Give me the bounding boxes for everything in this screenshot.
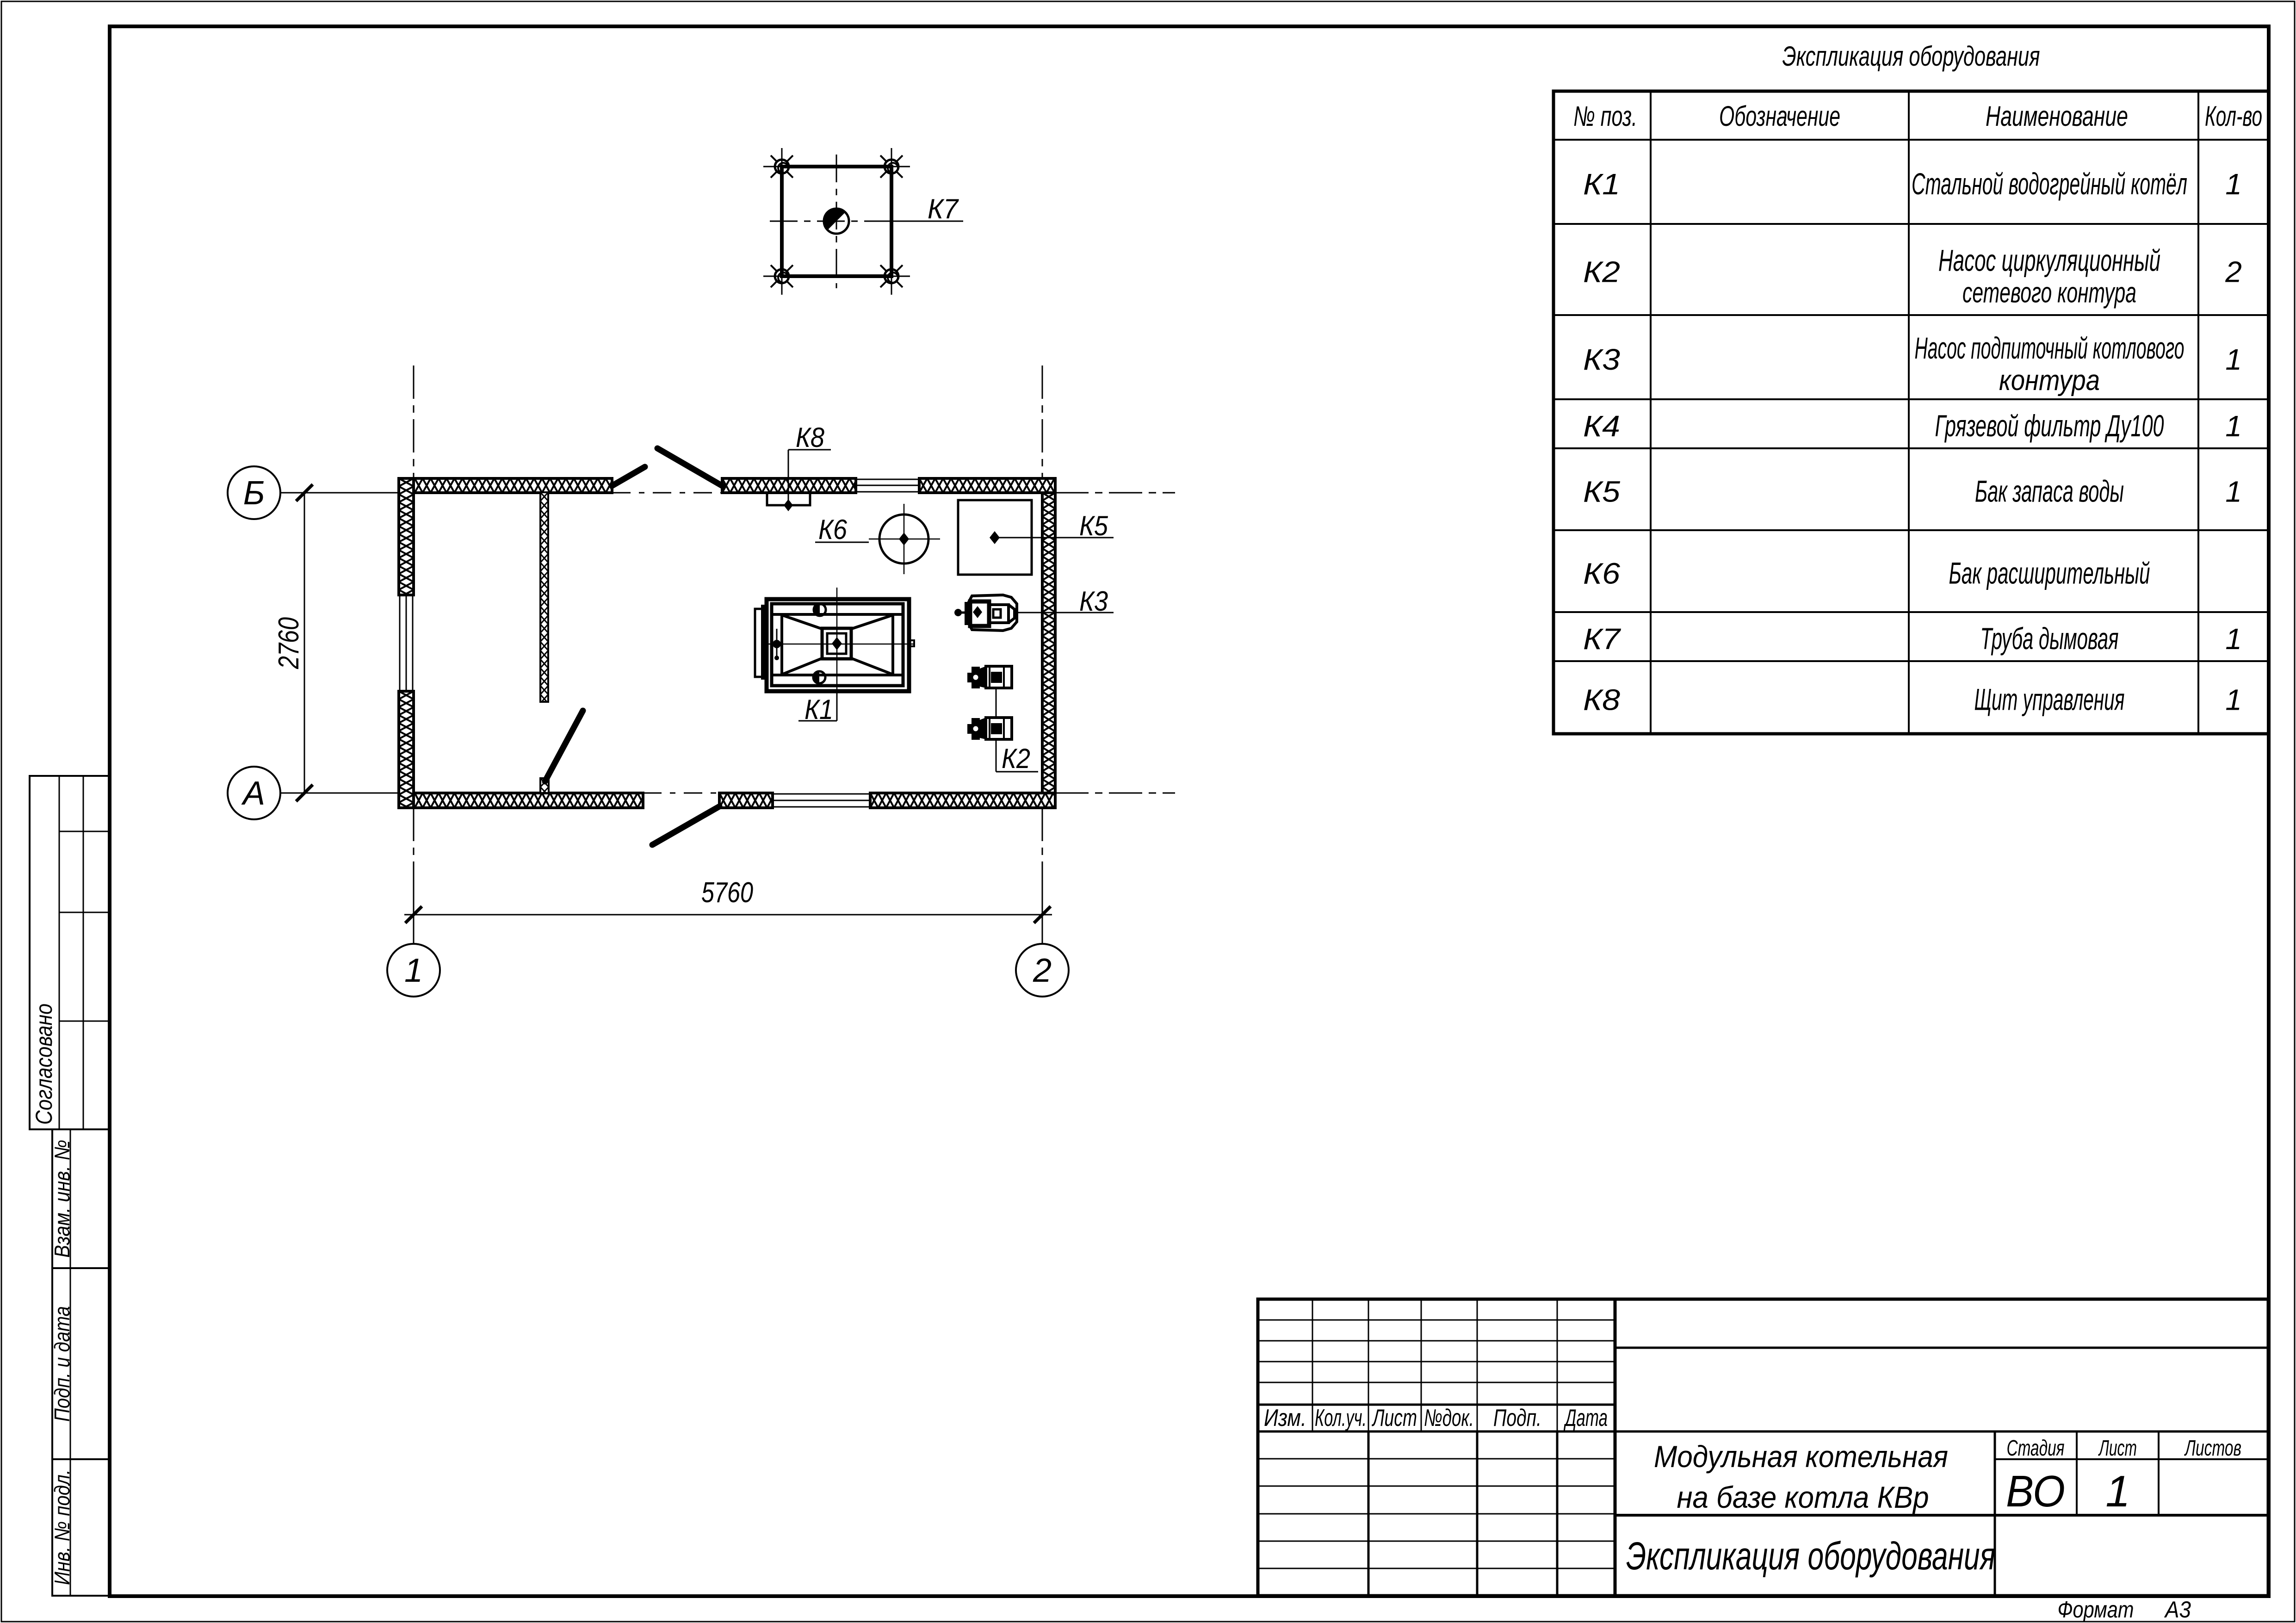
svg-text:Экспликация оборудования: Экспликация оборудования (1782, 41, 2040, 72)
svg-text:К2: К2 (1002, 743, 1030, 774)
svg-text:Насос подпиточный котлового: Насос подпиточный котлового (1915, 331, 2185, 365)
svg-text:Листов: Листов (2184, 1436, 2241, 1461)
svg-text:Модульная котельная: Модульная котельная (1654, 1439, 1948, 1474)
svg-text:К3: К3 (1079, 586, 1108, 617)
svg-text:№док.: №док. (1424, 1405, 1474, 1431)
svg-text:Стадия: Стадия (2007, 1436, 2065, 1461)
svg-text:Лист: Лист (2098, 1436, 2137, 1461)
svg-text:К8: К8 (1583, 683, 1620, 717)
svg-text:контура: контура (1999, 365, 2100, 396)
svg-text:Кол.уч.: Кол.уч. (1315, 1405, 1367, 1431)
svg-text:К6: К6 (1583, 557, 1620, 590)
svg-text:1: 1 (2225, 343, 2242, 376)
svg-text:ВО: ВО (2006, 1467, 2065, 1516)
svg-text:К1: К1 (1583, 167, 1620, 201)
svg-text:А: А (241, 775, 265, 812)
svg-text:сетевого контура: сетевого контура (1962, 277, 2136, 309)
svg-text:1: 1 (2225, 475, 2242, 508)
svg-text:Экспликация оборудования: Экспликация оборудования (1626, 1534, 1995, 1578)
svg-text:Бак расширительный: Бак расширительный (1949, 556, 2150, 590)
svg-text:К4: К4 (1583, 409, 1620, 443)
svg-text:К2: К2 (1583, 255, 1620, 289)
svg-text:Бак запаса воды: Бак запаса воды (1975, 474, 2124, 508)
svg-text:К5: К5 (1079, 510, 1108, 541)
svg-text:Инв. № подл.: Инв. № подл. (50, 1469, 74, 1585)
svg-text:№ поз.: № поз. (1573, 100, 1637, 132)
svg-text:К8: К8 (796, 422, 825, 453)
svg-text:Формат: Формат (2058, 1597, 2134, 1623)
svg-text:Кол-во: Кол-во (2205, 100, 2262, 132)
svg-text:2: 2 (2225, 255, 2242, 289)
svg-text:Подп.: Подп. (1493, 1405, 1541, 1431)
svg-text:1: 1 (2105, 1467, 2130, 1516)
svg-text:К7: К7 (928, 193, 959, 224)
svg-text:1: 1 (2225, 683, 2242, 717)
svg-text:на базе котла КВр: на базе котла КВр (1677, 1480, 1929, 1514)
svg-text:Грязевой фильтр Ду100: Грязевой фильтр Ду100 (1935, 409, 2164, 443)
svg-text:Обозначение: Обозначение (1719, 100, 1840, 132)
svg-text:Б: Б (243, 475, 265, 512)
svg-text:1: 1 (2225, 409, 2242, 443)
svg-text:Стальной водогрейный котёл: Стальной водогрейный котёл (1912, 167, 2187, 201)
svg-text:Наименование: Наименование (1986, 100, 2128, 132)
svg-text:К7: К7 (1583, 622, 1621, 656)
svg-text:К5: К5 (1583, 475, 1620, 508)
svg-text:5760: 5760 (701, 877, 753, 909)
svg-text:А3: А3 (2164, 1597, 2191, 1623)
svg-text:Дата: Дата (1564, 1405, 1608, 1431)
svg-text:1: 1 (404, 952, 423, 989)
svg-text:К6: К6 (818, 514, 848, 545)
svg-text:2760: 2760 (273, 617, 305, 669)
svg-text:1: 1 (2225, 622, 2242, 656)
svg-text:К3: К3 (1583, 343, 1620, 376)
svg-text:1: 1 (2225, 167, 2242, 201)
svg-text:Лист: Лист (1372, 1405, 1417, 1431)
svg-text:К1: К1 (805, 694, 833, 725)
svg-text:Насос циркуляционный: Насос циркуляционный (1938, 243, 2160, 278)
svg-text:Подп. и дата: Подп. и дата (50, 1306, 74, 1422)
svg-text:Согласовано: Согласовано (31, 1004, 57, 1125)
svg-text:Труба дымовая: Труба дымовая (1980, 621, 2119, 656)
svg-text:2: 2 (1033, 952, 1052, 989)
svg-text:Изм.: Изм. (1264, 1405, 1306, 1431)
svg-text:Взам. инв. №: Взам. инв. № (50, 1140, 74, 1258)
svg-text:Щит управления: Щит управления (1974, 682, 2125, 717)
